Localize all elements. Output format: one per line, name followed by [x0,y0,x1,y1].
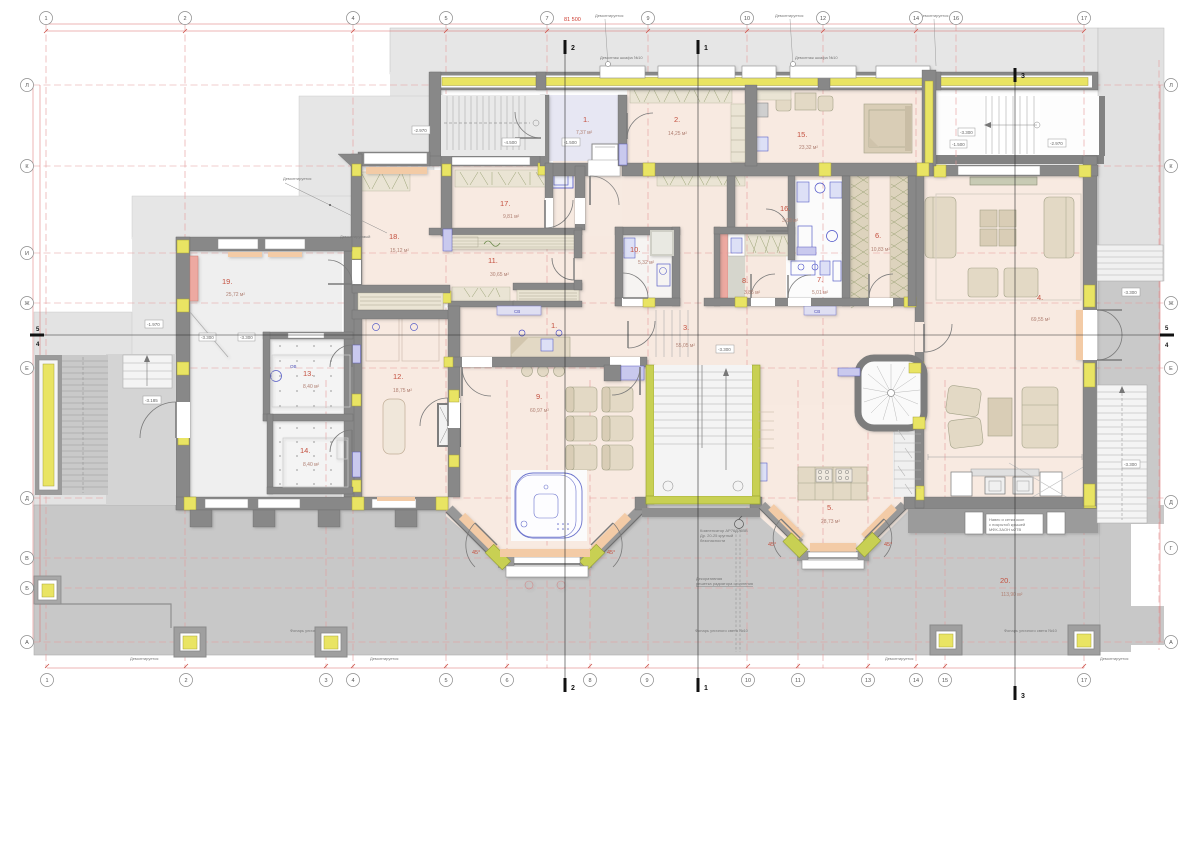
svg-text:15: 15 [942,678,948,684]
svg-text:Ж: Ж [24,301,29,307]
svg-text:Д: Д [25,496,29,502]
svg-text:10: 10 [744,16,750,22]
svg-text:16.: 16. [780,204,790,213]
svg-text:1: 1 [44,16,47,22]
svg-text:45°: 45° [768,542,776,548]
svg-text:Ж: Ж [1168,301,1173,307]
svg-text:-4.500: -4.500 [504,140,517,145]
svg-text:МФК-ЗАОН м2ТВ: МФК-ЗАОН м2ТВ [989,527,1022,532]
svg-text:2: 2 [571,45,575,52]
svg-text:CB: CB [514,309,520,314]
svg-text:14,25 м²: 14,25 м² [668,131,687,137]
svg-text:Демонтируется: Демонтируется [595,13,623,18]
svg-text:9: 9 [645,678,648,684]
svg-text:5,01 м²: 5,01 м² [812,290,829,296]
svg-text:23,32 м²: 23,32 м² [799,145,818,151]
svg-text:Демонтаж шкафа №10: Демонтаж шкафа №10 [795,55,838,60]
svg-text:20.: 20. [1000,576,1010,585]
svg-text:9: 9 [646,16,649,22]
svg-text:-1.500: -1.500 [952,142,965,147]
svg-text:11.: 11. [488,256,498,265]
svg-text:9,81 м²: 9,81 м² [503,214,520,220]
svg-text:28,73 м²: 28,73 м² [821,519,840,525]
svg-text:OB: OB [290,364,297,369]
svg-text:Г: Г [1170,546,1173,552]
svg-text:5: 5 [444,678,447,684]
svg-text:8.: 8. [742,276,748,285]
svg-text:4: 4 [351,678,354,684]
svg-text:Д: Д [1169,500,1173,506]
svg-text:решетка радиатора отопления: решетка радиатора отопления [696,581,753,586]
svg-text:1: 1 [704,45,708,52]
svg-text:Демонтируется: Демонтируется [775,13,803,18]
svg-text:Демонтируется: Демонтируется [1100,656,1128,661]
svg-text:12.: 12. [393,372,403,381]
svg-text:3: 3 [1021,73,1025,80]
svg-text:безопасности: безопасности [700,538,725,543]
svg-text:Фонарь уличного света №10: Фонарь уличного света №10 [1004,628,1058,633]
svg-text:15.: 15. [797,130,807,139]
svg-text:8: 8 [588,678,591,684]
svg-text:69,55 м²: 69,55 м² [1031,317,1050,323]
svg-text:13: 13 [865,678,871,684]
svg-text:1: 1 [45,678,48,684]
svg-text:5: 5 [444,16,447,22]
svg-text:Демонтируемый: Демонтируемый [340,234,370,239]
svg-text:-3.300: -3.300 [201,335,214,340]
svg-text:7.: 7. [817,275,823,284]
svg-text:Демонтируется: Демонтируется [370,656,398,661]
svg-text:3.: 3. [683,323,689,332]
svg-text:Демонтаж шкафа №10: Демонтаж шкафа №10 [600,55,643,60]
svg-text:Е: Е [1169,366,1173,372]
svg-text:-1.500: -1.500 [564,140,577,145]
svg-text:-3.300: -3.300 [1124,462,1137,467]
svg-text:10: 10 [745,678,751,684]
svg-text:45°: 45° [472,550,480,556]
svg-text:-3.300: -3.300 [960,130,973,135]
svg-text:2.: 2. [674,115,680,124]
svg-text:6.: 6. [875,231,881,240]
svg-text:60,97 м²: 60,97 м² [530,408,549,414]
svg-text:5,32 м²: 5,32 м² [638,260,655,266]
svg-text:2: 2 [571,685,575,692]
svg-text:17: 17 [1081,678,1087,684]
svg-text:Демонтируется: Демонтируется [885,656,913,661]
svg-text:И: И [25,251,29,257]
svg-text:-2.970: -2.970 [414,128,427,133]
svg-text:Б: Б [25,586,29,592]
svg-text:Фонарь уличного света №10: Фонарь уличного света №10 [695,628,749,633]
svg-text:45°: 45° [607,550,615,556]
svg-text:В: В [25,556,29,562]
svg-text:1.: 1. [583,115,589,124]
svg-text:8,40 м²: 8,40 м² [303,462,320,468]
svg-text:25,72 м²: 25,72 м² [226,292,245,298]
svg-text:3,85 м²: 3,85 м² [744,290,761,296]
svg-text:3,68 м²: 3,68 м² [782,218,799,224]
svg-text:3: 3 [324,678,327,684]
svg-text:17.: 17. [500,199,510,208]
svg-text:81 500: 81 500 [564,17,581,23]
svg-text:19.: 19. [222,277,232,286]
svg-text:1.: 1. [551,321,557,330]
svg-text:2: 2 [183,16,186,22]
svg-text:55,05 м²: 55,05 м² [676,343,695,349]
svg-text:Демонтируется: Демонтируется [920,13,948,18]
svg-text:-3.185: -3.185 [145,398,158,403]
svg-text:А: А [25,640,29,646]
svg-text:-3.300: -3.300 [1124,290,1137,295]
svg-text:4.: 4. [1037,293,1043,302]
svg-text:А: А [1169,640,1173,646]
svg-text:Демонтируется: Демонтируется [283,176,311,181]
svg-text:10,83 м²: 10,83 м² [871,247,890,253]
svg-text:6: 6 [505,678,508,684]
svg-text:45°: 45° [884,542,892,548]
svg-text:7: 7 [545,16,548,22]
svg-text:Демонтируется: Демонтируется [130,656,158,661]
svg-text:12: 12 [820,16,826,22]
svg-text:13.: 13. [303,369,313,378]
svg-text:-3.300: -3.300 [718,347,731,352]
svg-text:1: 1 [704,685,708,692]
svg-text:16: 16 [953,16,959,22]
svg-text:14: 14 [913,678,919,684]
svg-text:17: 17 [1081,16,1087,22]
svg-text:Л: Л [1169,83,1173,89]
svg-text:18.: 18. [389,232,399,241]
svg-text:11: 11 [795,678,801,684]
svg-text:5.: 5. [827,503,833,512]
svg-text:CB: CB [814,309,820,314]
svg-text:Е: Е [25,366,29,372]
svg-text:15,12 м²: 15,12 м² [390,248,409,254]
svg-text:2: 2 [184,678,187,684]
svg-text:10.: 10. [630,245,640,254]
svg-text:-3.300: -3.300 [240,335,253,340]
svg-text:113,90 м²: 113,90 м² [1001,592,1023,598]
svg-text:30,65 м²: 30,65 м² [490,272,509,278]
svg-text:-1.970: -1.970 [147,322,160,327]
svg-text:8,40 м²: 8,40 м² [303,384,320,390]
svg-text:14.: 14. [300,446,310,455]
svg-text:9.: 9. [536,392,542,401]
svg-text:14: 14 [913,16,919,22]
svg-text:4: 4 [351,16,354,22]
svg-text:3: 3 [1021,693,1025,700]
svg-text:18,75 м²: 18,75 м² [393,388,412,394]
svg-text:Л: Л [25,83,29,89]
svg-text:-2.970: -2.970 [1050,141,1063,146]
svg-text:7,37 м²: 7,37 м² [576,130,593,136]
